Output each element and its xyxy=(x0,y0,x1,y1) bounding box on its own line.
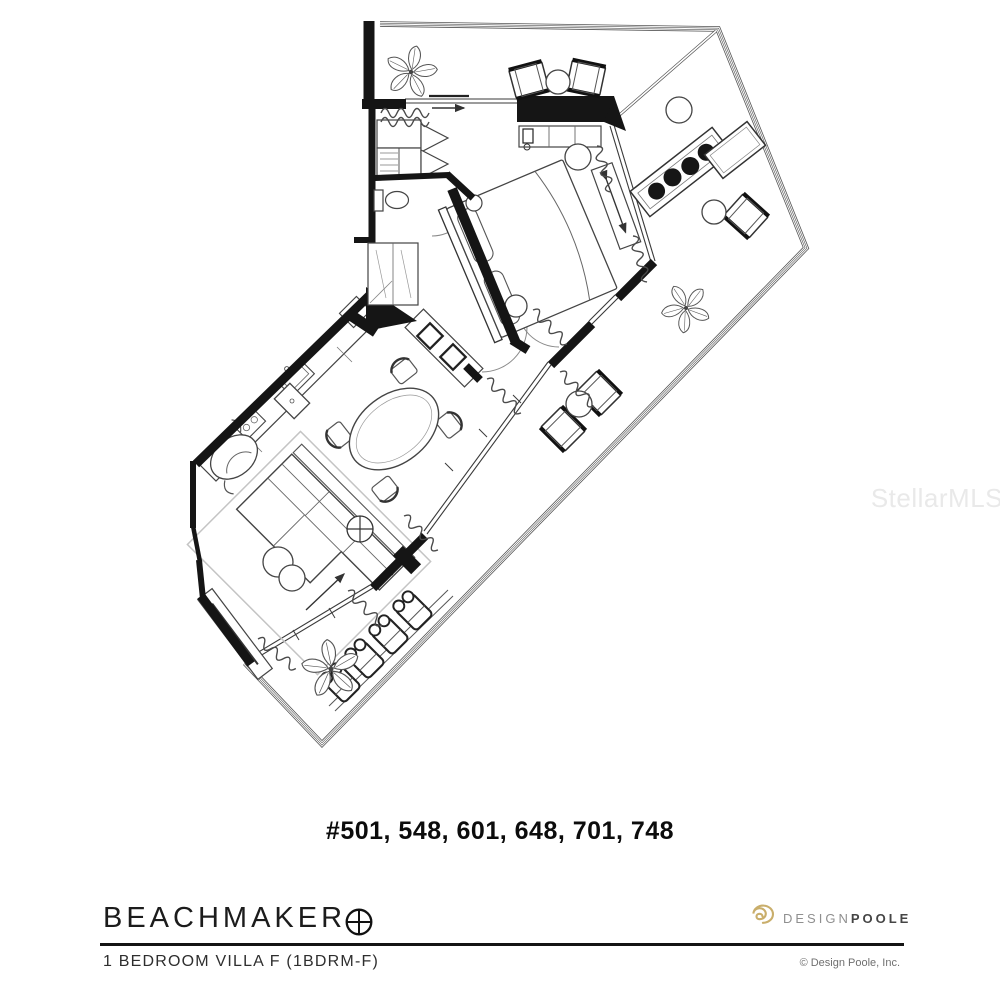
logo-poole-text: POOLE xyxy=(851,911,912,926)
plan-name: 1 BEDROOM VILLA F (1BDRM-F) xyxy=(103,953,379,971)
vanity xyxy=(519,126,601,150)
vanity-stool xyxy=(565,144,591,170)
dining-chair xyxy=(371,475,402,506)
bed xyxy=(438,158,618,343)
plant-icon xyxy=(385,45,437,99)
logo-design-text: DESIGN xyxy=(783,911,851,926)
dining-table xyxy=(334,371,455,486)
terrace-divider xyxy=(616,31,716,118)
terrace-chair xyxy=(509,61,550,99)
pouf xyxy=(279,565,305,591)
terrace-chair xyxy=(566,60,605,96)
spiral-icon xyxy=(744,903,777,933)
compass-icon xyxy=(344,907,374,937)
unit-numbers: #501, 548, 601, 648, 701, 748 xyxy=(0,817,1000,846)
terrace-table xyxy=(566,391,592,417)
terrace-chair xyxy=(723,193,768,238)
dining-chair xyxy=(435,409,466,440)
copyright: © Design Poole, Inc. xyxy=(800,957,900,969)
brand-title: BEACHMAKER xyxy=(103,902,346,935)
terrace-side-table xyxy=(702,200,726,224)
side-table xyxy=(347,516,373,542)
designpoole-logo: DESIGNPOOLE xyxy=(744,902,911,934)
bathroom xyxy=(368,190,418,305)
sofa xyxy=(237,444,415,622)
watermark: StellarMLS xyxy=(871,483,1000,514)
floor-plan xyxy=(0,0,1000,1000)
divider-line xyxy=(100,943,904,946)
shower xyxy=(368,243,418,305)
dining-area xyxy=(322,354,465,505)
toilet xyxy=(374,190,409,211)
closet xyxy=(377,120,448,178)
dining-chair xyxy=(322,421,353,452)
plant-icon xyxy=(653,274,721,342)
terrace-side-table xyxy=(666,97,692,123)
floor-plan-page: StellarMLS #501, 548, 601, 648, 701, 748… xyxy=(0,0,1000,1000)
terrace-table xyxy=(546,70,570,94)
dining-chair xyxy=(388,354,419,385)
